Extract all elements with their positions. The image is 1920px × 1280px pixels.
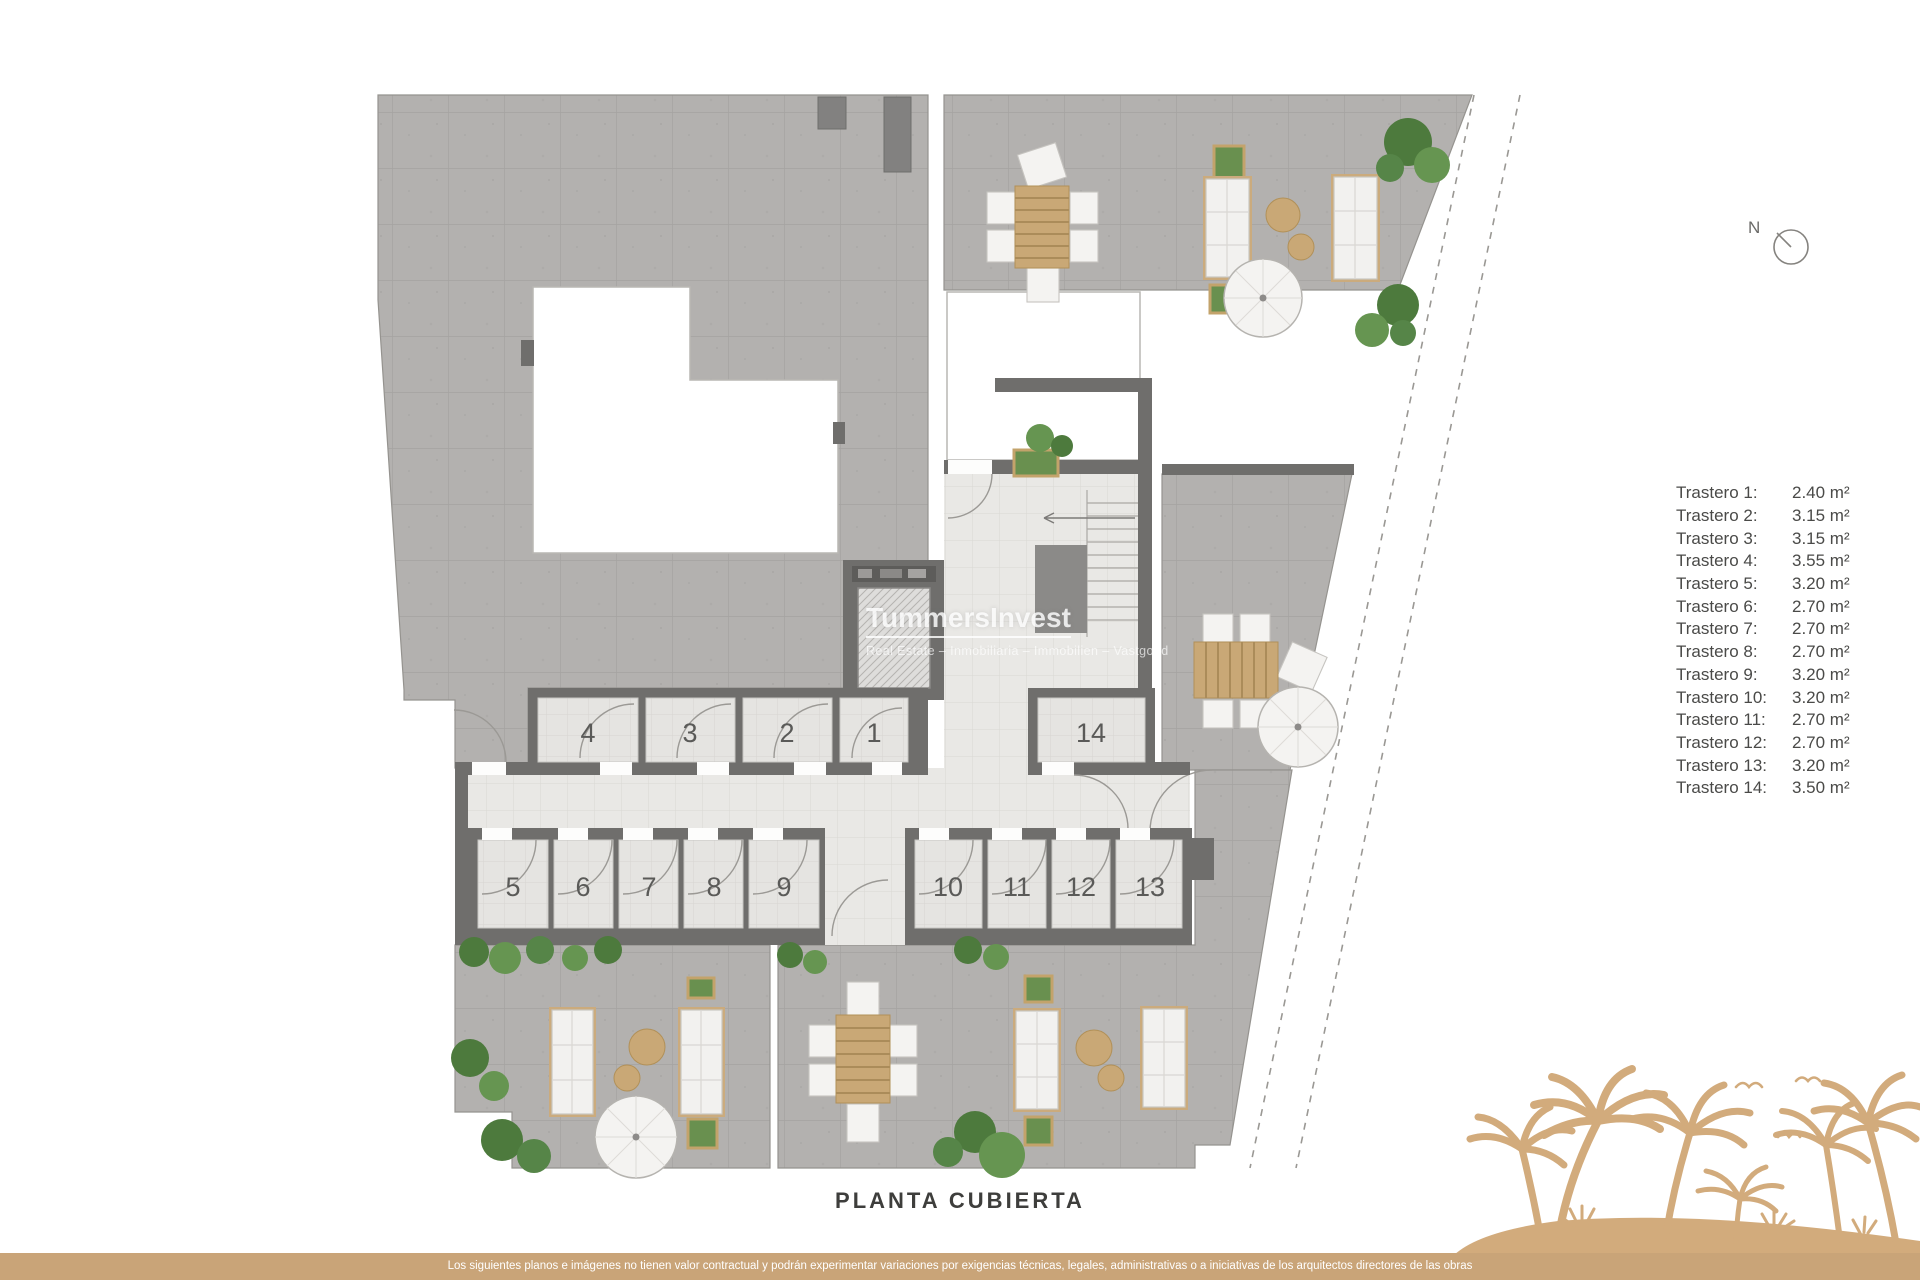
- legend-row: Trastero 12:2.70 m²: [1676, 732, 1876, 755]
- legend-value: 2.70 m²: [1792, 619, 1876, 639]
- legend-value: 3.15 m²: [1792, 529, 1876, 549]
- palm-beach-illustration: [1440, 1025, 1920, 1255]
- legend-row: Trastero 7:2.70 m²: [1676, 618, 1876, 641]
- legend-value: 3.55 m²: [1792, 551, 1876, 571]
- chimney: [818, 97, 846, 129]
- room-label-9: 9: [776, 872, 791, 902]
- elevator: [843, 560, 944, 700]
- corridor-floor: [460, 768, 1190, 835]
- corridor-link-floor: [944, 693, 1028, 775]
- legend-value: 3.20 m²: [1792, 688, 1876, 708]
- legend-value: 2.70 m²: [1792, 597, 1876, 617]
- legend-row: Trastero 5:3.20 m²: [1676, 573, 1876, 596]
- legend-row: Trastero 11:2.70 m²: [1676, 709, 1876, 732]
- parasol: [595, 1096, 677, 1178]
- legend-label: Trastero 3:: [1676, 529, 1792, 549]
- legend-label: Trastero 7:: [1676, 619, 1792, 639]
- legend-value: 2.70 m²: [1792, 733, 1876, 753]
- room-label-12: 12: [1066, 872, 1096, 902]
- disclaimer-text: Los siguientes planos e imágenes no tien…: [448, 1260, 1473, 1272]
- void-tick: [833, 422, 845, 444]
- legend-label: Trastero 5:: [1676, 574, 1792, 594]
- legend-label: Trastero 11:: [1676, 710, 1792, 730]
- page-title: PLANTA CUBIERTA: [0, 1188, 1920, 1214]
- floor-plan-page: 1 2 3 4 5 6 7 8 9 10 11 12 13 14: [0, 0, 1920, 1280]
- legend-label: Trastero 8:: [1676, 642, 1792, 662]
- legend-row: Trastero 8:2.70 m²: [1676, 641, 1876, 664]
- area-legend: Trastero 1:2.40 m² Trastero 2:3.15 m² Tr…: [1676, 482, 1876, 800]
- wall: [1162, 464, 1354, 475]
- legend-label: Trastero 4:: [1676, 551, 1792, 571]
- legend-label: Trastero 10:: [1676, 688, 1792, 708]
- legend-label: Trastero 1:: [1676, 483, 1792, 503]
- room-label-7: 7: [641, 872, 656, 902]
- legend-value: 2.70 m²: [1792, 710, 1876, 730]
- room-label-14: 14: [1076, 718, 1106, 748]
- room-label-10: 10: [933, 872, 963, 902]
- chimney: [884, 97, 911, 172]
- legend-label: Trastero 9:: [1676, 665, 1792, 685]
- room-label-4: 4: [580, 718, 595, 748]
- parasol: [1224, 259, 1302, 337]
- legend-value: 2.70 m²: [1792, 642, 1876, 662]
- room-label-3: 3: [682, 718, 697, 748]
- legend-row: Trastero 10:3.20 m²: [1676, 686, 1876, 709]
- legend-row: Trastero 6:2.70 m²: [1676, 595, 1876, 618]
- stair-void: [1035, 545, 1087, 633]
- parasol: [1258, 687, 1338, 767]
- legend-row: Trastero 3:3.15 m²: [1676, 527, 1876, 550]
- legend-label: Trastero 12:: [1676, 733, 1792, 753]
- disclaimer-bar: Los siguientes planos e imágenes no tien…: [0, 1253, 1920, 1280]
- legend-label: Trastero 13:: [1676, 756, 1792, 776]
- wall: [455, 768, 468, 945]
- legend-row: Trastero 13:3.20 m²: [1676, 754, 1876, 777]
- planter-box: [1014, 450, 1058, 476]
- legend-value: 2.40 m²: [1792, 483, 1876, 503]
- legend-row: Trastero 1:2.40 m²: [1676, 482, 1876, 505]
- room-label-2: 2: [779, 718, 794, 748]
- compass: N: [1740, 218, 1820, 278]
- room-label-13: 13: [1135, 872, 1165, 902]
- bird-icon: [1736, 1078, 1820, 1138]
- room-label-8: 8: [706, 872, 721, 902]
- legend-value: 3.50 m²: [1792, 778, 1876, 798]
- compass-north-label: N: [1748, 218, 1760, 238]
- room-label-11: 11: [1003, 872, 1031, 902]
- room-label-6: 6: [575, 872, 590, 902]
- legend-value: 3.20 m²: [1792, 756, 1876, 776]
- legend-label: Trastero 6:: [1676, 597, 1792, 617]
- legend-label: Trastero 14:: [1676, 778, 1792, 798]
- legend-row: Trastero 2:3.15 m²: [1676, 505, 1876, 528]
- legend-row: Trastero 14:3.50 m²: [1676, 777, 1876, 800]
- room-label-1: 1: [866, 718, 881, 748]
- legend-value: 3.20 m²: [1792, 574, 1876, 594]
- wall: [1150, 762, 1190, 775]
- corridor-south-floor: [825, 835, 905, 945]
- void-tick: [521, 340, 534, 366]
- legend-row: Trastero 4:3.55 m²: [1676, 550, 1876, 573]
- room-label-5: 5: [505, 872, 520, 902]
- legend-value: 3.20 m²: [1792, 665, 1876, 685]
- wall: [995, 378, 1150, 392]
- legend-value: 3.15 m²: [1792, 506, 1876, 526]
- legend-label: Trastero 2:: [1676, 506, 1792, 526]
- legend-row: Trastero 9:3.20 m²: [1676, 664, 1876, 687]
